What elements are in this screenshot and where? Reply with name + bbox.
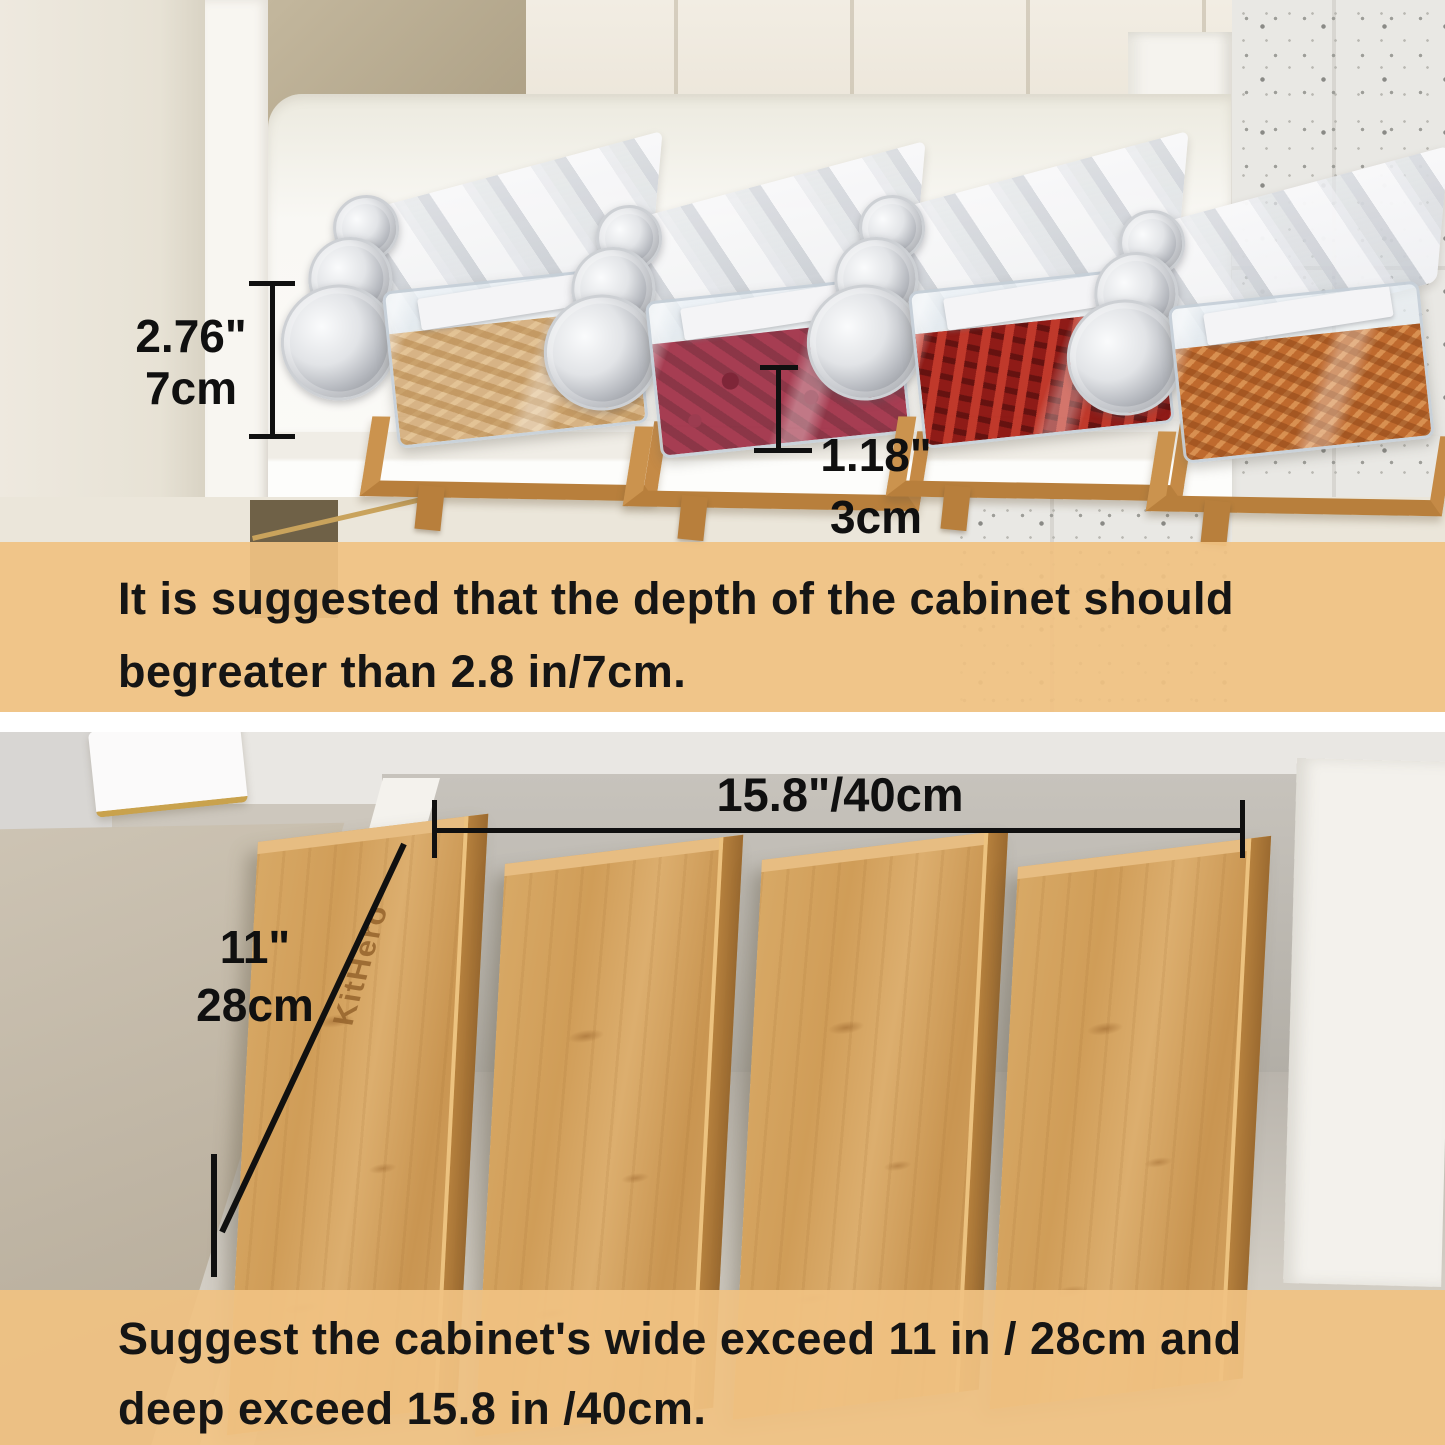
- size-note-line1: Suggest the cabinet's wide exceed 11 in …: [118, 1304, 1445, 1374]
- riser-dimension-line: [776, 367, 781, 452]
- size-note-line2: deep exceed 15.8 in /40cm.: [118, 1374, 1445, 1444]
- riser-dimension-label: 1.18" 3cm: [790, 424, 962, 548]
- spice-jar-row-shrimp: [1052, 173, 1445, 546]
- size-note-text: Suggest the cabinet's wide exceed 11 in …: [0, 1290, 1445, 1444]
- height-dimension-cap-bottom: [249, 434, 295, 439]
- product-infographic: 2.76" 7cm 1.18" 3cm It is suggested that…: [0, 0, 1445, 1445]
- depth-note-line2: begreater than 2.8 in/7cm.: [118, 635, 1445, 708]
- bamboo-riser-leg: [414, 485, 444, 531]
- width-inches: 11": [165, 918, 345, 976]
- bamboo-riser-leg: [1200, 500, 1230, 546]
- width-dimension-label: 11" 28cm: [165, 918, 345, 1034]
- depth-note-banner: It is suggested that the depth of the ca…: [0, 542, 1445, 712]
- width-cm: 28cm: [165, 976, 345, 1034]
- height-cm: 7cm: [112, 362, 270, 414]
- bamboo-riser: [1146, 431, 1445, 516]
- riser-cm: 3cm: [790, 486, 962, 548]
- height-dimension-line: [270, 283, 275, 438]
- riser-inches: 1.18": [790, 424, 962, 486]
- width-dimension-line: [222, 844, 404, 1232]
- riser-dimension-cap-top: [760, 365, 798, 370]
- size-note-banner: Suggest the cabinet's wide exceed 11 in …: [0, 1290, 1445, 1445]
- depth-note-line1: It is suggested that the depth of the ca…: [118, 562, 1445, 635]
- height-inches: 2.76": [112, 310, 270, 362]
- bamboo-riser-leg: [677, 495, 707, 541]
- height-dimension-cap-top: [249, 281, 295, 286]
- depth-note-text: It is suggested that the depth of the ca…: [0, 542, 1445, 708]
- section-divider: [0, 712, 1445, 732]
- height-dimension-label: 2.76" 7cm: [112, 310, 270, 415]
